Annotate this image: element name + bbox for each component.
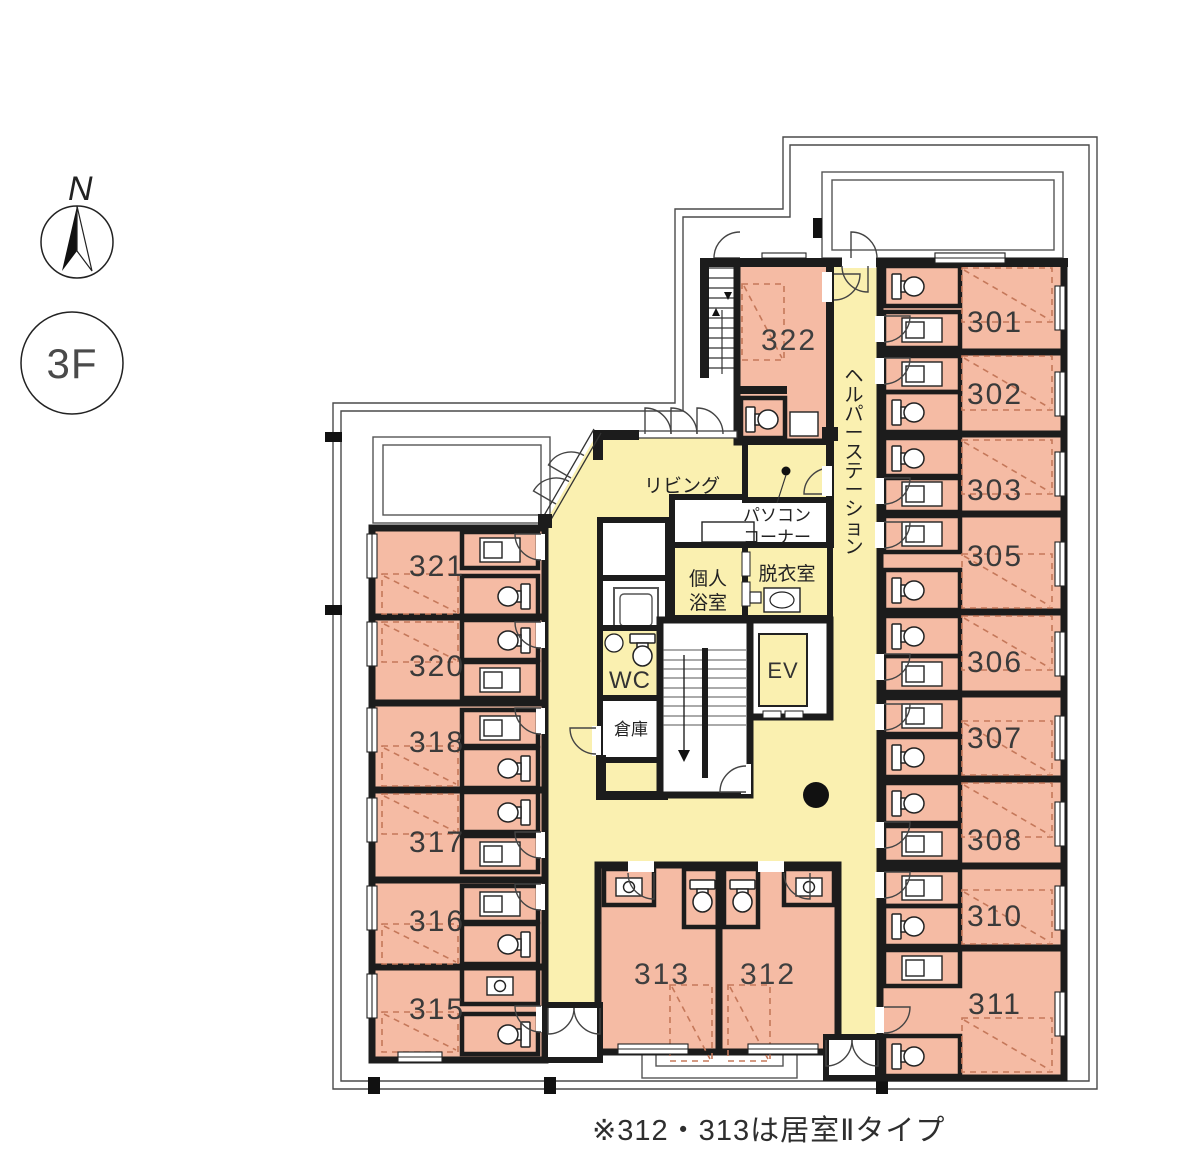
closet-icon (902, 832, 942, 856)
balcony-top-inner (832, 180, 1054, 250)
boundary-tick (325, 605, 342, 615)
closet-icon (902, 522, 942, 546)
window-icon (367, 798, 377, 842)
room-label-317: 317 (409, 826, 465, 859)
shaft-room (600, 520, 668, 578)
door-gap (875, 1007, 884, 1033)
folding-door-icon (645, 408, 671, 434)
closet-icon (480, 892, 520, 916)
legend: N 3F (21, 170, 123, 414)
room-label-307: 307 (967, 722, 1023, 755)
room-label-308: 308 (967, 824, 1023, 857)
stair-rail (702, 648, 708, 778)
wall-top-322 (700, 258, 837, 267)
door-gap (875, 872, 884, 898)
stair-wall (700, 258, 709, 378)
floorplan-page: N 3F (0, 0, 1200, 1163)
living-label: リビング (644, 475, 720, 497)
folding-door-icon (697, 408, 723, 434)
balcony-wall-stub (813, 218, 822, 238)
room-label-318: 318 (409, 726, 465, 759)
rooms-left-wing: 321 320 318 317 316 315 (367, 528, 545, 1062)
room-label-311: 311 (968, 988, 1022, 1021)
window-icon (1055, 452, 1065, 496)
closet-icon (902, 876, 942, 900)
sink-icon (796, 878, 822, 896)
window-icon (1055, 372, 1065, 416)
closet-icon (902, 482, 942, 506)
stool-icon (750, 592, 761, 603)
helper-station-label: ヘルパーステーション (844, 366, 863, 558)
elevator-door-icon (763, 711, 781, 718)
closet-icon (480, 716, 520, 740)
window-icon (367, 708, 377, 752)
boundary-tick (325, 432, 342, 442)
wall-corner-blob (822, 427, 838, 441)
room-label-305: 305 (967, 540, 1023, 573)
sliding-door-icon (742, 582, 750, 606)
footnote: ※312・313は居室Ⅱタイプ (592, 1114, 945, 1147)
rooms-bottom: 313 312 (598, 861, 838, 1061)
room-label-316: 316 (409, 905, 465, 938)
private-bath-label-1: 個人 (689, 568, 727, 590)
door-gap (875, 316, 884, 342)
dressing-label: 脱衣室 (758, 563, 815, 585)
door-gap (875, 522, 884, 548)
wc-label: WC (609, 667, 651, 694)
pc-corner-label-1: パソコン (743, 506, 811, 525)
room-label-320: 320 (409, 650, 465, 683)
closet-icon (902, 956, 942, 980)
desk-322 (790, 412, 818, 436)
window-icon (367, 886, 377, 930)
closet-icon (480, 842, 520, 866)
storage-label: 倉庫 (614, 720, 648, 739)
room-label-302: 302 (967, 378, 1023, 411)
boundary-tick (368, 1077, 380, 1094)
door-gap (592, 726, 601, 756)
window-icon (367, 974, 377, 1018)
door-gap (875, 704, 884, 730)
window-icon (1055, 286, 1065, 330)
elevator-label: EV (767, 658, 798, 683)
door-gap (875, 358, 884, 384)
pillar-icon (803, 782, 829, 808)
corner-sink-icon (605, 634, 623, 652)
closet-icon (480, 538, 520, 562)
elevator-door-icon (785, 711, 803, 718)
door-gap (758, 861, 784, 872)
door-gap (628, 861, 654, 872)
boundary-tick (544, 1077, 556, 1094)
window-icon (1055, 886, 1065, 930)
wall-corner-blob (538, 514, 552, 528)
room-label-313: 313 (634, 958, 690, 991)
north-label: N (68, 170, 93, 208)
door-gap (741, 764, 751, 794)
stair-top-door-icon (714, 232, 740, 258)
window-icon (398, 1052, 442, 1062)
private-bath-label-2: 浴室 (689, 592, 727, 614)
door-gap (875, 478, 884, 504)
door-gap (875, 654, 884, 680)
corridor-left-lower (545, 865, 600, 1005)
window-icon (1055, 716, 1065, 760)
door-gap (875, 822, 884, 848)
room-label-312: 312 (740, 958, 796, 991)
door-gap (536, 832, 545, 858)
room-label-315: 315 (409, 993, 465, 1026)
compass-needle-outline-icon (77, 206, 92, 271)
rooms-right-wing: 301 302 303 305 306 307 308 310 311 (875, 253, 1065, 1078)
door-gap (822, 272, 832, 302)
room-label-322: 322 (761, 324, 817, 357)
closet-icon (902, 362, 942, 386)
door-gap (536, 622, 545, 648)
closet-icon (902, 704, 942, 728)
window-icon (748, 1044, 818, 1054)
room-label-303: 303 (967, 474, 1023, 507)
wall-stub-322 (737, 386, 787, 394)
floor-label: 3F (46, 340, 97, 387)
folding-door-icon (671, 408, 697, 434)
closet-icon (902, 318, 942, 342)
compass-needle-icon (62, 206, 77, 271)
door-gap (536, 708, 545, 734)
window-icon (935, 253, 1005, 263)
window-icon (1055, 632, 1065, 676)
window-icon (367, 534, 377, 578)
window-icon (367, 622, 377, 666)
window-icon (1055, 802, 1065, 846)
window-icon (1055, 992, 1065, 1036)
room-label-301: 301 (967, 306, 1023, 339)
closet-icon (480, 668, 520, 692)
balcony-left-inner (383, 445, 541, 515)
pc-corner-dot-icon (782, 467, 791, 476)
sink-icon (487, 977, 513, 995)
room-label-310: 310 (967, 900, 1023, 933)
window-icon (618, 1044, 688, 1054)
door-gap (536, 884, 545, 910)
door-gap (822, 466, 832, 496)
room-label-321: 321 (409, 550, 465, 583)
room-label-306: 306 (967, 646, 1023, 679)
sliding-door-icon (742, 552, 750, 576)
entry-door-gap (842, 256, 876, 268)
window-icon (1055, 542, 1065, 586)
door-gap (536, 534, 545, 560)
